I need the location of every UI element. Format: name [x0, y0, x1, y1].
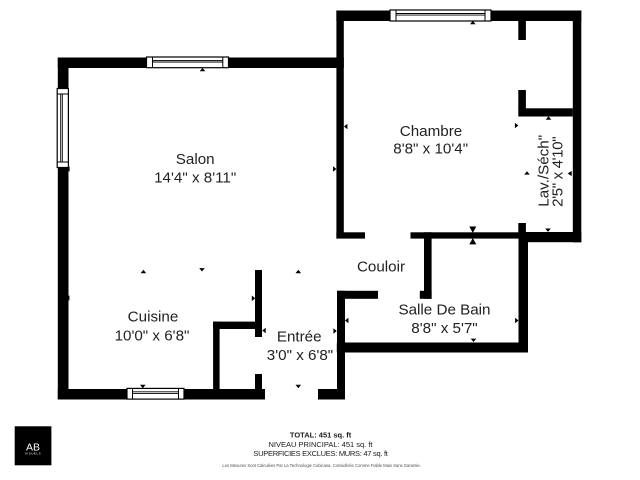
svg-text:Entrée: Entrée [277, 328, 322, 345]
svg-text:14'4" x 8'11": 14'4" x 8'11" [154, 169, 236, 186]
svg-text:SUPERFICIES EXCLUES: MURS: 47: SUPERFICIES EXCLUES: MURS: 47 sq. ft [253, 449, 388, 458]
svg-text:8'8" x 5'7": 8'8" x 5'7" [411, 320, 477, 337]
svg-text:NIVEAU PRINCIPAL: 451 sq. ft: NIVEAU PRINCIPAL: 451 sq. ft [268, 440, 373, 449]
svg-text:VISUELS: VISUELS [25, 452, 41, 456]
svg-text:Chambre: Chambre [400, 123, 462, 140]
svg-text:3'0" x 6'8": 3'0" x 6'8" [267, 347, 333, 364]
svg-text:Couloir: Couloir [357, 259, 405, 276]
svg-text:8'8" x 10'4": 8'8" x 10'4" [393, 141, 468, 158]
svg-text:Les Mesures Sont Calculées Par: Les Mesures Sont Calculées Par La Techno… [222, 463, 420, 468]
svg-text:TOTAL: 451 sq. ft: TOTAL: 451 sq. ft [290, 431, 352, 440]
svg-text:Salon: Salon [176, 151, 215, 168]
svg-text:Cuisine: Cuisine [128, 309, 179, 326]
svg-text:10'0" x 6'8": 10'0" x 6'8" [115, 328, 190, 345]
svg-text:2'5" x 4'10": 2'5" x 4'10" [550, 137, 567, 207]
svg-text:Salle De Bain: Salle De Bain [398, 301, 490, 318]
